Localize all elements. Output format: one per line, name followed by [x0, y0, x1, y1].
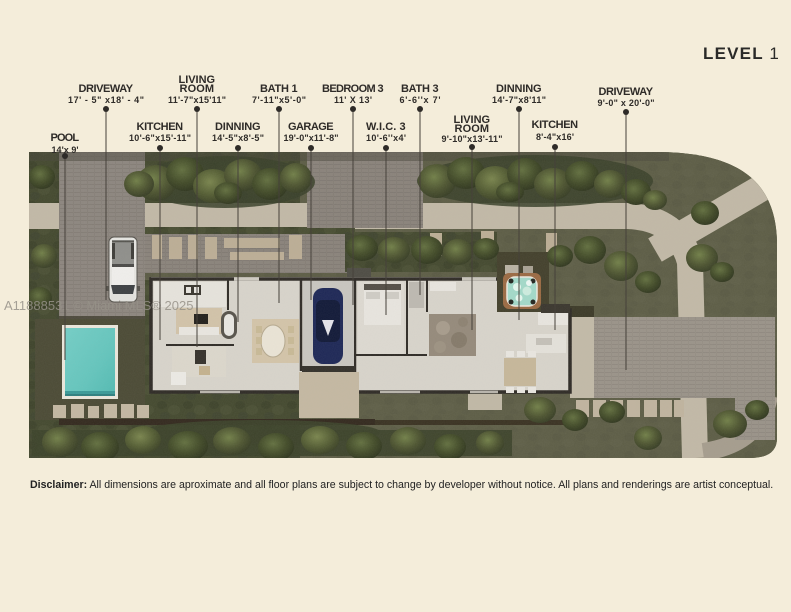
svg-text:8'-4"x16': 8'-4"x16'	[536, 132, 574, 142]
svg-text:POOL: POOL	[51, 132, 80, 144]
svg-text:BATH 1: BATH 1	[260, 83, 298, 95]
svg-text:Disclaimer: All dimensions are: Disclaimer: All dimensions are aproximat…	[30, 479, 773, 491]
svg-text:7'-11"x5'-0": 7'-11"x5'-0"	[252, 95, 306, 105]
svg-text:11' X 13': 11' X 13'	[334, 95, 372, 105]
svg-text:10'-6''x4': 10'-6''x4'	[366, 133, 406, 143]
svg-text:14'-5"x8'-5": 14'-5"x8'-5"	[212, 133, 264, 143]
svg-text:19'-0"x11'-8": 19'-0"x11'-8"	[284, 133, 339, 143]
svg-text:9'-10"x13'-11": 9'-10"x13'-11"	[442, 134, 503, 144]
svg-text:DRIVEWAY: DRIVEWAY	[79, 83, 134, 95]
svg-text:DINNING: DINNING	[215, 121, 261, 133]
svg-text:11'-7"x15'11": 11'-7"x15'11"	[168, 95, 226, 105]
svg-text:DRIVEWAY: DRIVEWAY	[599, 86, 654, 98]
svg-text:LEVEL 1: LEVEL 1	[703, 44, 780, 63]
svg-text:KITCHEN: KITCHEN	[137, 121, 184, 133]
svg-text:14'-7"x8'11": 14'-7"x8'11"	[492, 95, 546, 105]
svg-text:9'-0" x 20'-0": 9'-0" x 20'-0"	[598, 98, 655, 108]
svg-text:ROOM: ROOM	[180, 83, 215, 95]
svg-text:A11888531 © Miami MLS® 2025: A11888531 © Miami MLS® 2025	[4, 298, 193, 313]
svg-text:BEDROOM 3: BEDROOM 3	[322, 83, 384, 95]
svg-text:6'-6''x 7': 6'-6''x 7'	[400, 95, 441, 105]
svg-text:BATH 3: BATH 3	[401, 83, 439, 95]
svg-text:W.I.C. 3: W.I.C. 3	[366, 121, 406, 133]
svg-text:DINNING: DINNING	[496, 83, 542, 95]
svg-text:10'-6"x15'-11": 10'-6"x15'-11"	[129, 133, 191, 143]
svg-text:KITCHEN: KITCHEN	[532, 119, 579, 131]
svg-text:17' - 5" x18' - 4": 17' - 5" x18' - 4"	[68, 95, 144, 105]
svg-text:14'x 9': 14'x 9'	[52, 145, 79, 155]
svg-text:GARAGE: GARAGE	[288, 121, 334, 133]
